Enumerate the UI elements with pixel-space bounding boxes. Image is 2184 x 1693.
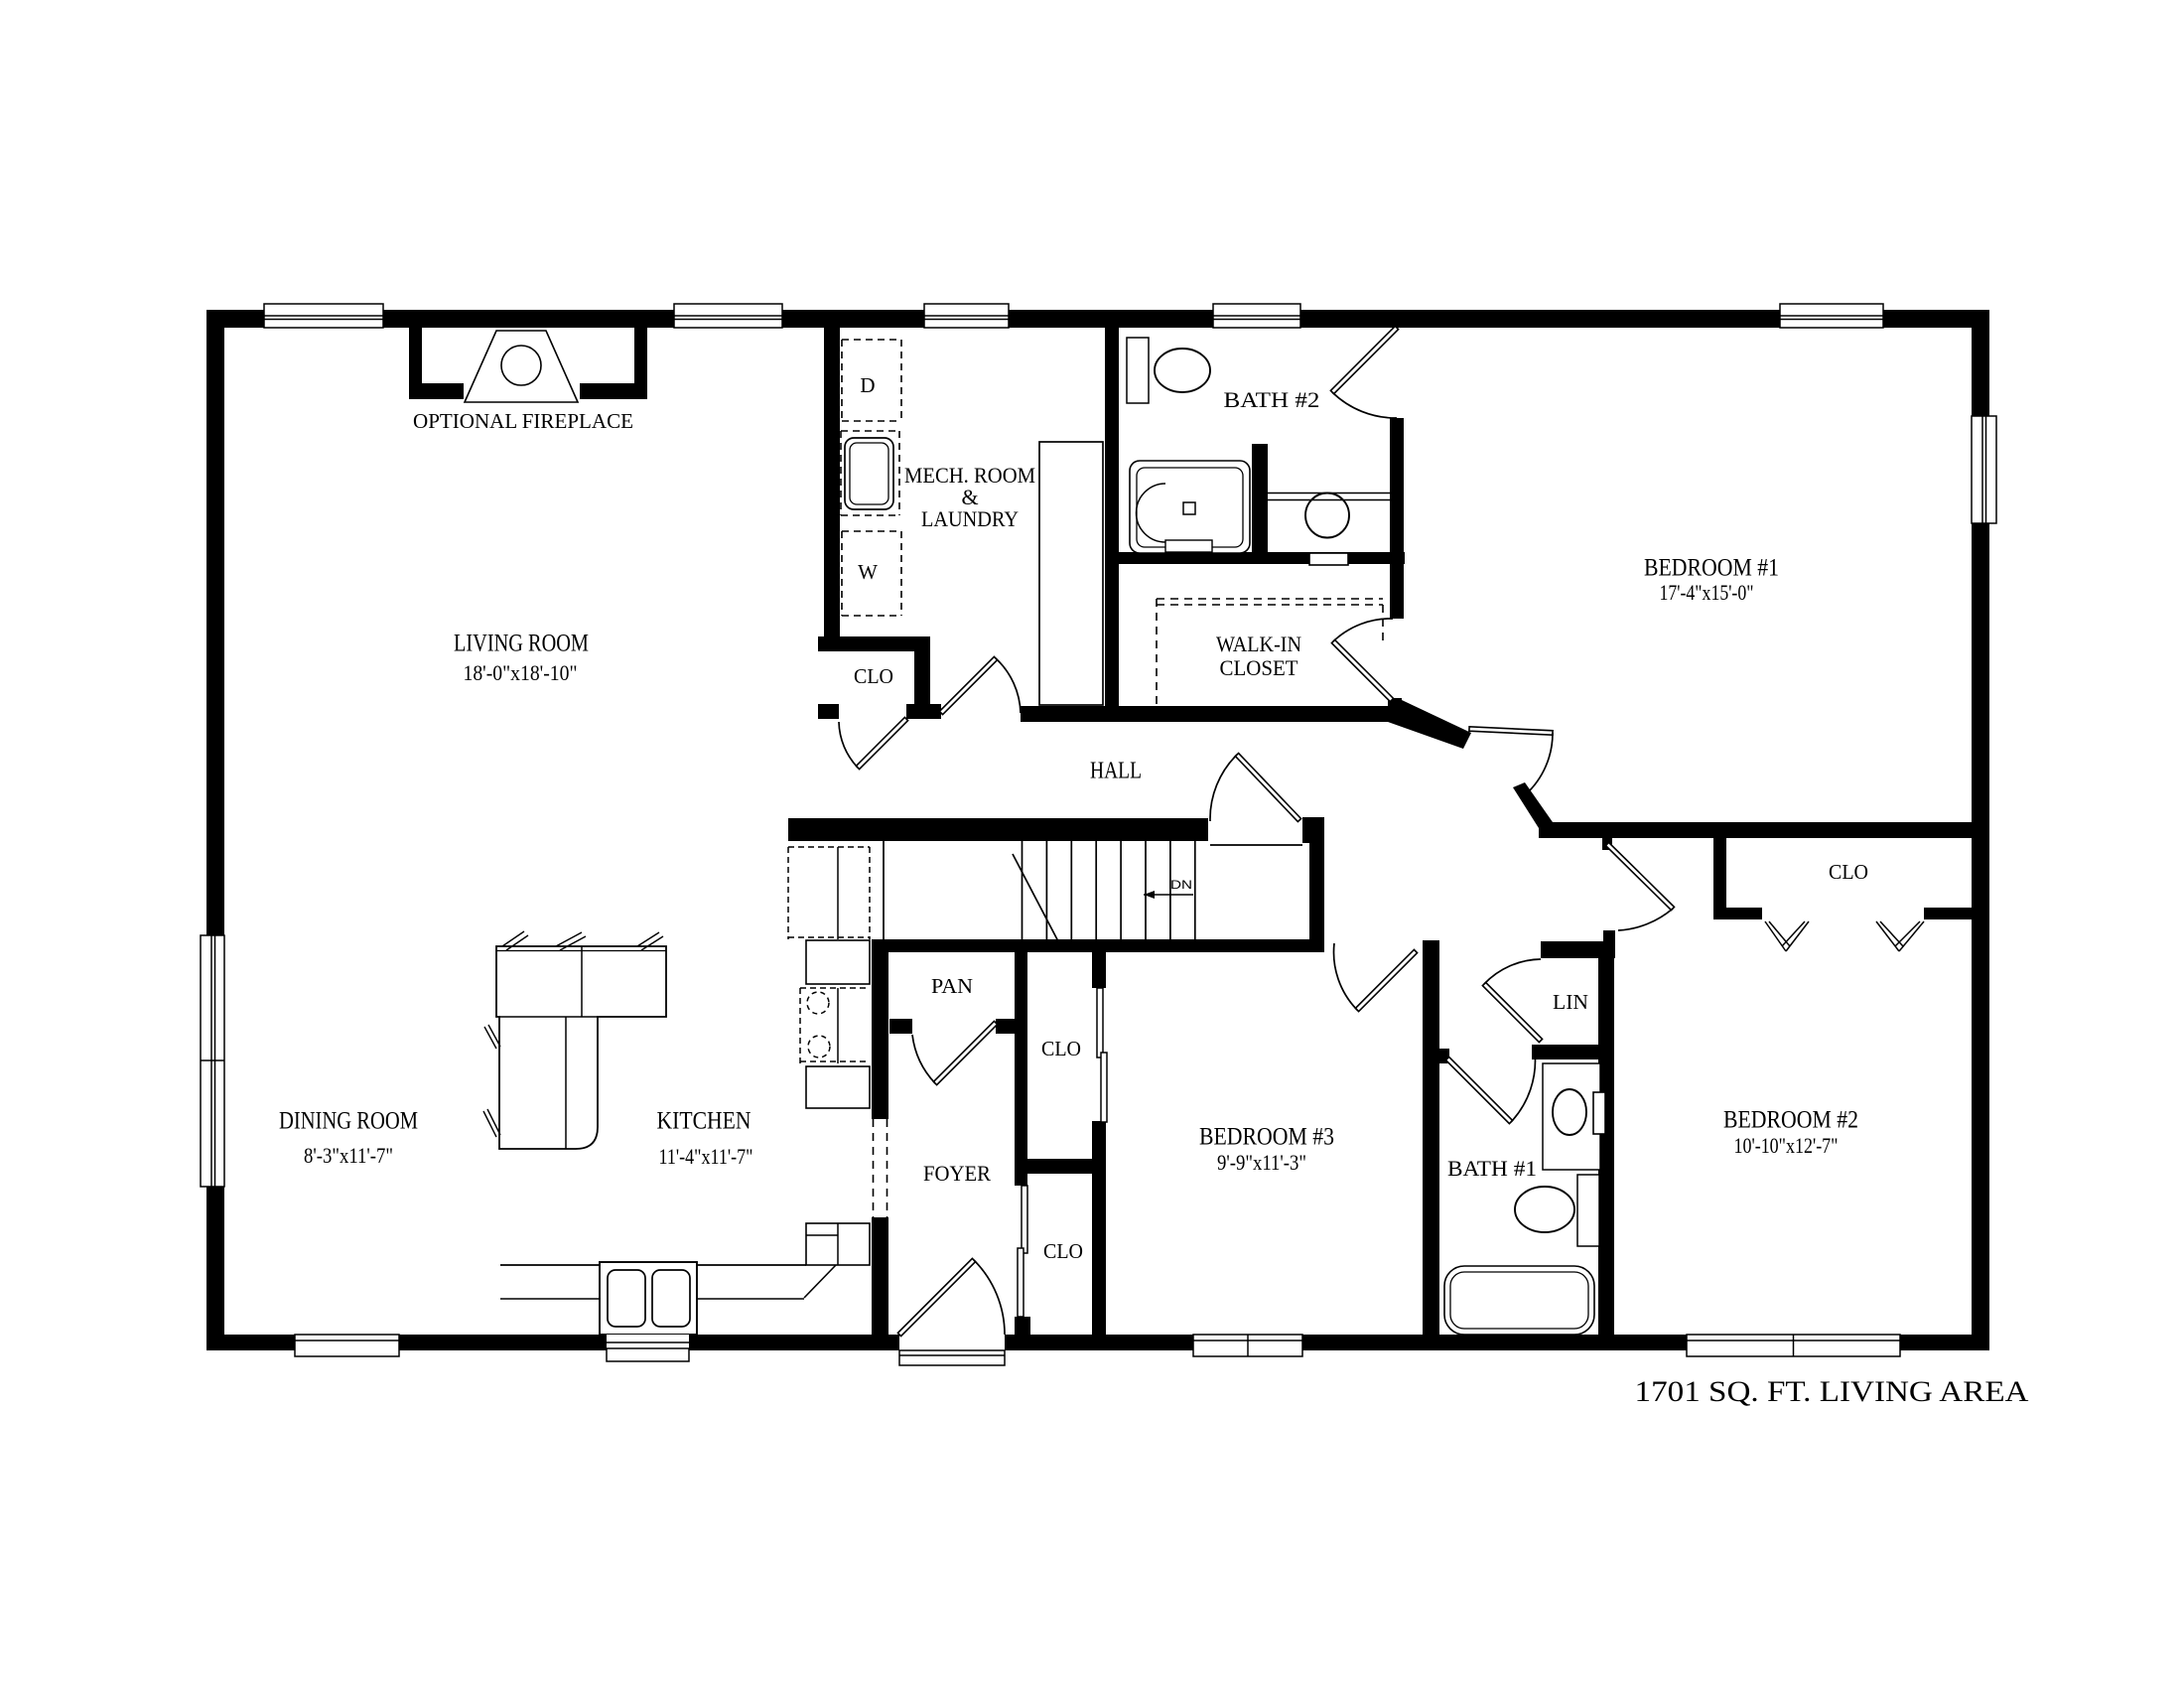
svg-text:18'-0"x18'-10": 18'-0"x18'-10" <box>464 660 578 685</box>
svg-text:CLO: CLO <box>1829 860 1868 884</box>
svg-text:17'-4"x15'-0": 17'-4"x15'-0" <box>1660 580 1754 605</box>
svg-text:BEDROOM #2: BEDROOM #2 <box>1723 1107 1858 1134</box>
svg-text:9'-9"x11'-3": 9'-9"x11'-3" <box>1217 1150 1306 1175</box>
svg-text:KITCHEN: KITCHEN <box>657 1108 751 1135</box>
svg-text:FOYER: FOYER <box>923 1161 991 1186</box>
svg-text:BEDROOM #1: BEDROOM #1 <box>1644 555 1779 582</box>
svg-text:W: W <box>858 560 878 584</box>
svg-text:DINING ROOM: DINING ROOM <box>279 1108 418 1135</box>
svg-text:OPTIONAL FIREPLACE: OPTIONAL FIREPLACE <box>413 409 633 433</box>
svg-text:LIN: LIN <box>1553 990 1588 1014</box>
svg-text:11'-4"x11'-7": 11'-4"x11'-7" <box>659 1144 753 1169</box>
svg-text:10'-10"x12'-7": 10'-10"x12'-7" <box>1734 1133 1839 1158</box>
svg-text:CLO: CLO <box>854 664 893 688</box>
svg-text:BEDROOM #3: BEDROOM #3 <box>1199 1124 1334 1151</box>
svg-text:BATH #2: BATH #2 <box>1224 387 1320 412</box>
svg-text:BATH #1: BATH #1 <box>1447 1156 1537 1181</box>
svg-text:PAN: PAN <box>931 974 973 998</box>
svg-text:D: D <box>860 373 875 397</box>
svg-text:LIVING ROOM: LIVING ROOM <box>454 631 589 657</box>
svg-text:DN: DN <box>1170 878 1192 892</box>
svg-text:CLO: CLO <box>1043 1239 1083 1263</box>
svg-text:CLO: CLO <box>1041 1037 1081 1060</box>
svg-text:WALK-IN: WALK-IN <box>1216 632 1301 656</box>
svg-text:1701 SQ. FT. LIVING AREA: 1701 SQ. FT. LIVING AREA <box>1635 1375 2029 1408</box>
svg-text:HALL: HALL <box>1090 759 1142 784</box>
svg-text:LAUNDRY: LAUNDRY <box>921 506 1019 531</box>
svg-text:8'-3"x11'-7": 8'-3"x11'-7" <box>304 1143 393 1168</box>
svg-text:CLOSET: CLOSET <box>1220 655 1299 680</box>
